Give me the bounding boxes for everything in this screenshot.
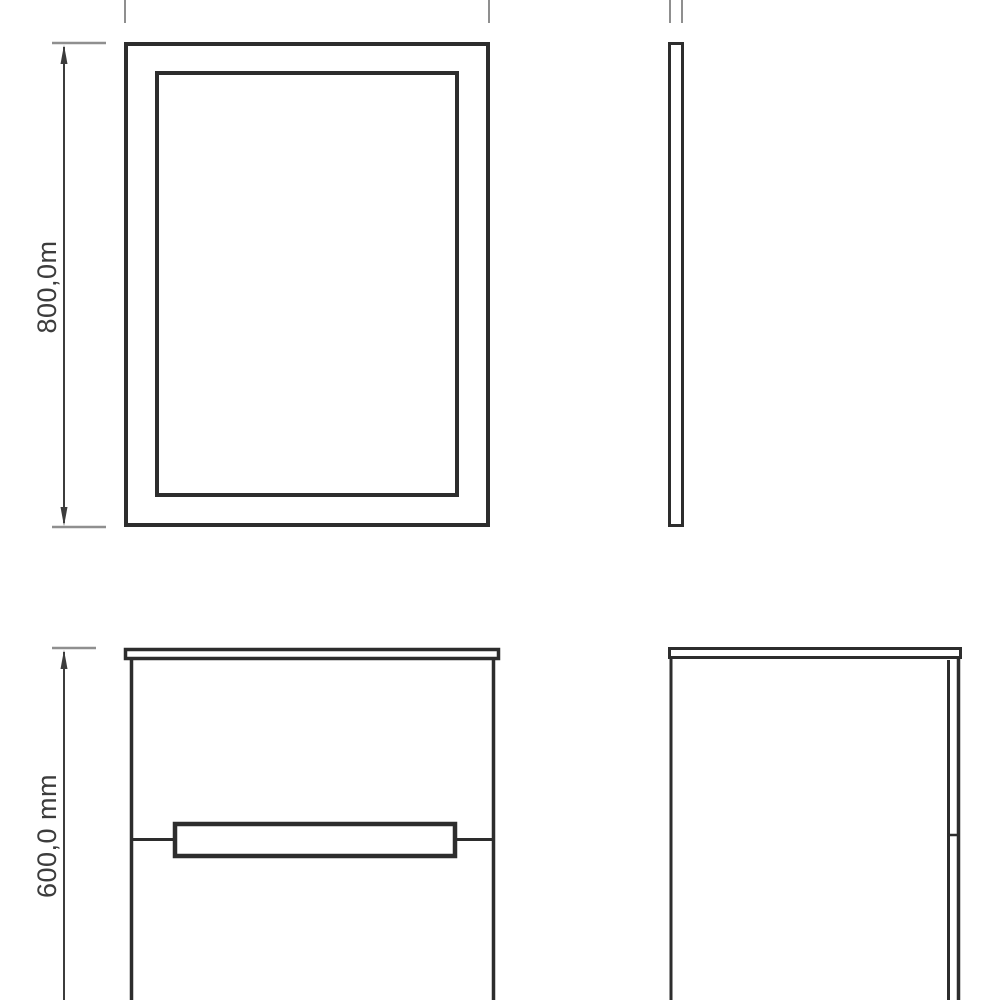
mirror-front-view (126, 44, 488, 525)
cabinet-countertop-side (670, 649, 961, 658)
mirror-dim-arrow-down-icon (61, 507, 68, 526)
mirror-side-profile (670, 44, 683, 526)
cabinet-countertop-front (126, 650, 499, 659)
mirror-outer-frame (126, 44, 488, 525)
mirror-side-view (670, 44, 683, 526)
drawing-page: 800,0m 600,0 mm (0, 0, 1000, 1000)
mirror-height-label: 800,0m (32, 240, 62, 333)
cabinet-dim-arrow-up-icon (61, 650, 68, 669)
dimension-mirror-height: 800,0m (32, 43, 106, 527)
drawer-handle (175, 824, 455, 856)
mirror-inner-frame (157, 73, 457, 495)
top-extension-ticks (125, 0, 682, 23)
cabinet-height-label: 600,0 mm (32, 774, 62, 898)
mirror-dim-arrow-up-icon (61, 45, 68, 64)
cabinet-front-view (126, 650, 499, 1000)
technical-drawing-canvas: 800,0m 600,0 mm (0, 0, 1000, 1000)
dimension-cabinet-height: 600,0 mm (32, 648, 96, 1000)
cabinet-side-view (670, 649, 961, 1000)
